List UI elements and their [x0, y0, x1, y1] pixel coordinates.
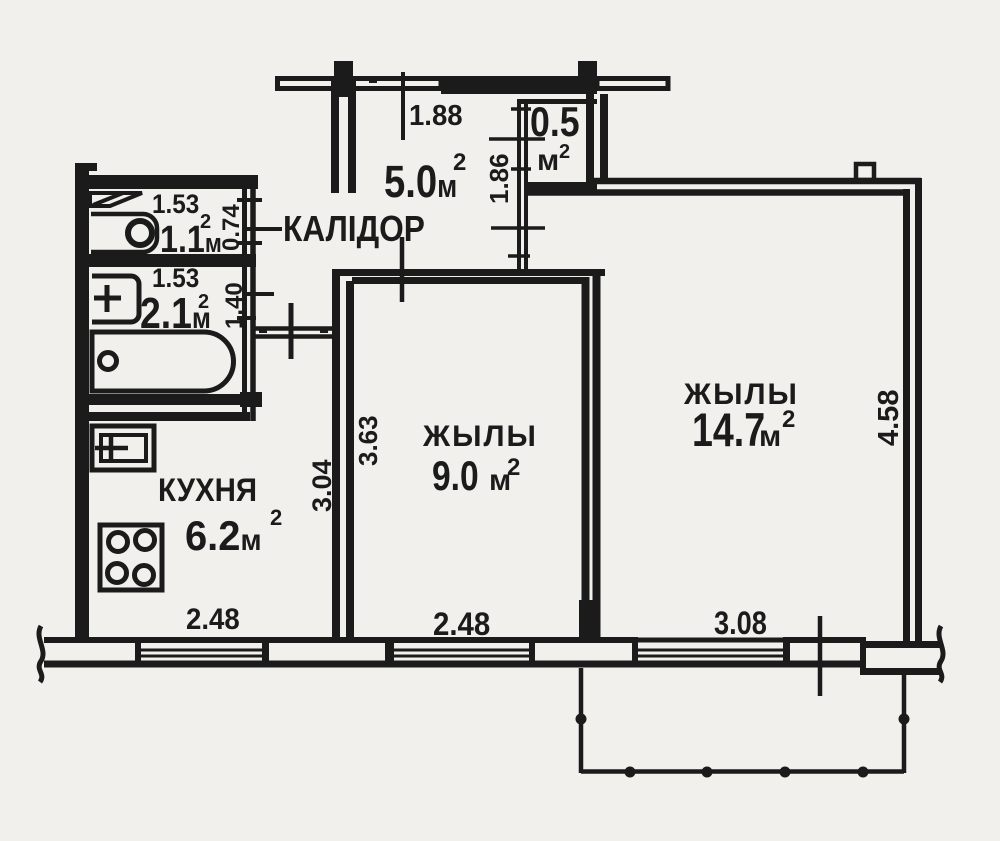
svg-text:КУХНЯ: КУХНЯ	[158, 472, 257, 508]
svg-text:1.53: 1.53	[152, 190, 199, 219]
svg-text:1.88: 1.88	[409, 98, 463, 131]
svg-text:1.40: 1.40	[221, 282, 248, 329]
svg-text:2: 2	[507, 454, 520, 481]
svg-text:2: 2	[559, 141, 570, 163]
svg-text:4.58: 4.58	[873, 390, 905, 446]
svg-text:1.1м: 1.1м	[160, 219, 222, 261]
svg-text:КАЛІДОР: КАЛІДОР	[283, 209, 425, 249]
svg-text:2: 2	[782, 406, 795, 433]
svg-text:1.86: 1.86	[484, 153, 514, 204]
svg-text:5.0м: 5.0м	[384, 156, 457, 207]
svg-text:2: 2	[200, 211, 211, 233]
svg-text:0.74: 0.74	[218, 204, 245, 251]
svg-text:м: м	[537, 144, 559, 177]
svg-text:9.0: 9.0	[432, 454, 479, 500]
svg-text:14.7: 14.7	[692, 404, 765, 457]
svg-text:2: 2	[198, 291, 209, 313]
svg-text:ЖЫЛЫ: ЖЫЛЫ	[422, 420, 538, 453]
svg-text:2.48: 2.48	[186, 603, 240, 636]
svg-text:2: 2	[270, 505, 282, 530]
svg-text:0.5: 0.5	[530, 99, 580, 145]
svg-text:3.63: 3.63	[353, 415, 383, 466]
svg-text:3.08: 3.08	[714, 606, 767, 642]
svg-text:3.04: 3.04	[307, 459, 337, 512]
svg-text:6.2м: 6.2м	[185, 512, 262, 559]
svg-text:м: м	[759, 420, 781, 453]
svg-text:2.48: 2.48	[433, 606, 490, 642]
svg-text:2: 2	[453, 149, 466, 176]
